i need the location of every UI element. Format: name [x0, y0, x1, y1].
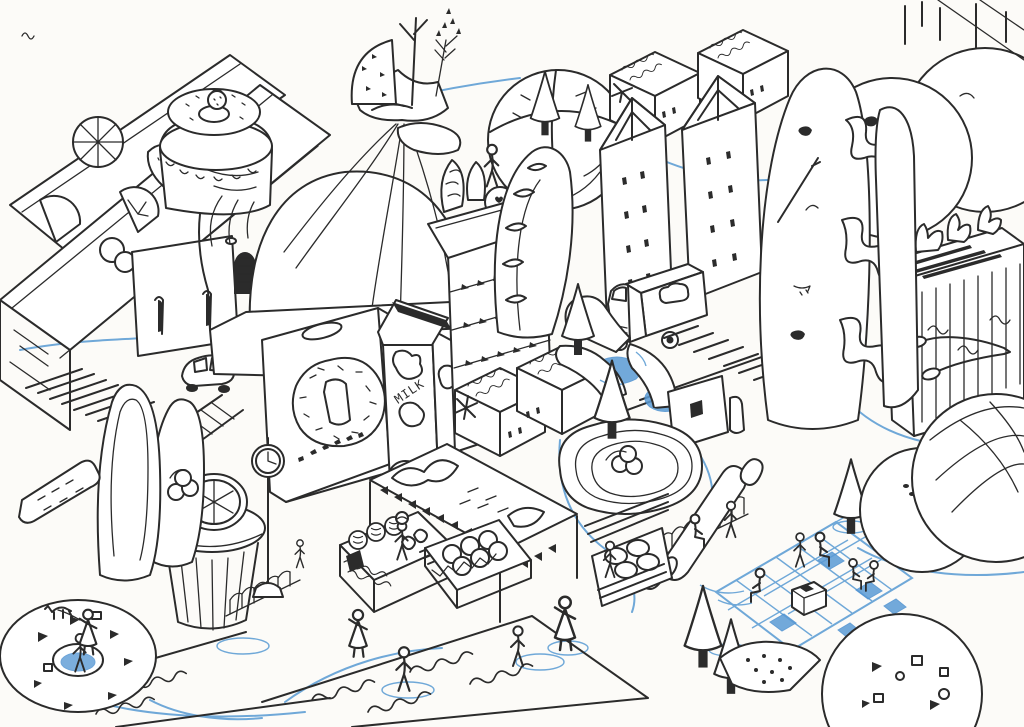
strawberry-donut	[168, 89, 260, 135]
dotted-field	[720, 642, 820, 692]
bread-town-drawing: MILK	[0, 0, 1024, 727]
eclair-buildings	[98, 385, 204, 581]
child	[295, 540, 304, 568]
donut-plaza	[0, 600, 156, 712]
bird-squiggle	[22, 33, 34, 39]
picnicker	[849, 559, 861, 589]
man-shopper	[396, 647, 410, 691]
breadstick	[19, 461, 100, 523]
danish-pond	[559, 419, 702, 514]
picnicker	[751, 569, 764, 602]
bench-climber	[725, 502, 737, 538]
woman-shopper	[349, 610, 367, 657]
lettuce-sandwich-building	[760, 69, 918, 429]
illustration-bread-town: MILK	[0, 0, 1024, 727]
corner-marks	[905, 2, 1006, 48]
picnic-basket	[792, 582, 826, 615]
